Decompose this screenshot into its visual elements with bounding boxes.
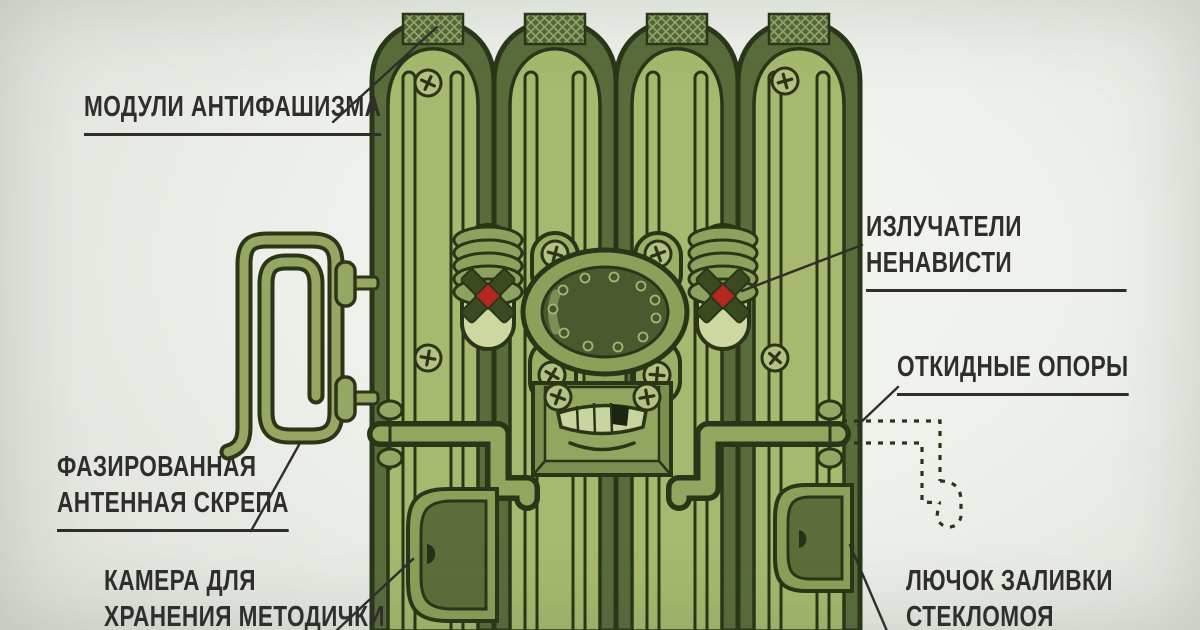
label-phased-antenna: ФАЗИРОВАННАЯ АНТЕННАЯ СКРЕПА — [57, 450, 289, 532]
mesh-vent — [769, 14, 829, 44]
mesh-vent — [525, 14, 585, 44]
label-storage-chamber: КАМЕРА ДЛЯ ХРАНЕНИЯ МЕТОДИЧКИ — [104, 564, 385, 630]
washer-hatch — [775, 485, 852, 591]
mesh-vent — [647, 14, 707, 44]
label-hate-emitters: ИЗЛУЧАТЕЛИ НЕНАВИСТИ — [866, 210, 1127, 292]
label-washer-hatch: ЛЮЧОК ЗАЛИВКИ СТЕКЛОМОЯ — [906, 564, 1113, 630]
hinge-knuckle — [378, 401, 402, 419]
mouth-plate — [533, 380, 671, 475]
hinge-knuckle — [378, 449, 402, 467]
hinge-knuckle — [818, 401, 842, 419]
label-antifascism-modules: МОДУЛИ АНТИФАШИЗМА — [84, 90, 381, 136]
missing-tooth — [612, 404, 629, 426]
hinge-knuckle — [818, 449, 842, 467]
storage-hatch — [408, 489, 497, 621]
central-port — [523, 233, 687, 404]
leader-supports — [858, 387, 898, 425]
mesh-vent — [403, 14, 463, 44]
hate-emitter-left — [454, 225, 522, 349]
antenna-paperclip — [228, 240, 378, 452]
hate-emitter-right — [689, 225, 757, 349]
label-folding-supports: ОТКИДНЫЕ ОПОРЫ — [897, 350, 1129, 396]
infographic-canvas: МОДУЛИ АНТИФАШИЗМА ИЗЛУЧАТЕЛИ НЕНАВИСТИ … — [0, 0, 1200, 630]
